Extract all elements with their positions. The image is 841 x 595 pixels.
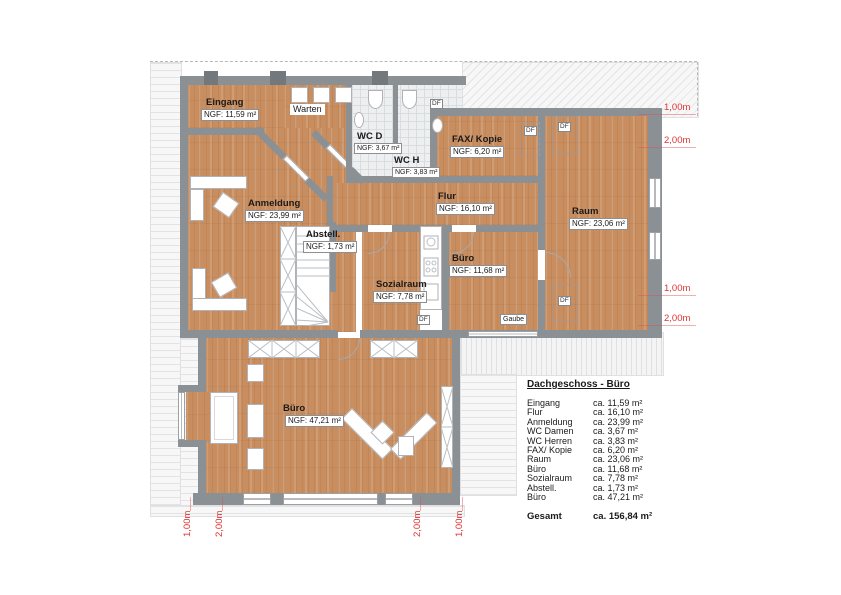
room-label-buero2: Büro bbox=[452, 254, 474, 264]
legend: Dachgeschoss - Büro Eingangca. 11,59 m² … bbox=[527, 379, 727, 522]
room-label-sozialraum: Sozialraum bbox=[376, 280, 427, 290]
room-label-wc-d: WC D bbox=[357, 132, 382, 142]
legend-room-name: Büro bbox=[527, 493, 593, 502]
room-label-warten: Warten bbox=[290, 104, 325, 115]
wall-flur-left bbox=[327, 176, 333, 228]
room-label-buero-gross: Büro bbox=[283, 404, 305, 414]
wall-right bbox=[648, 108, 662, 338]
dimension-line bbox=[638, 147, 696, 148]
dimension-bottom-4: 1,00m bbox=[455, 511, 465, 537]
window-buero-gross-1 bbox=[243, 493, 271, 505]
wall-left bbox=[180, 76, 188, 335]
dimension-right-2: 2,00m bbox=[664, 136, 690, 146]
room-area-abstell: NGF: 1,73 m² bbox=[303, 241, 357, 253]
legend-total-value: ca. 156,84 m² bbox=[593, 512, 652, 521]
room-area-raum: NGF: 23,06 m² bbox=[569, 218, 628, 230]
window-buero-gross-2 bbox=[283, 493, 378, 505]
dimension-tick bbox=[420, 497, 421, 511]
wall-bay-bottom bbox=[178, 440, 200, 447]
legend-total-label: Gesamt bbox=[527, 512, 593, 521]
roof-hatch-mid-right bbox=[460, 332, 664, 376]
window-gaube bbox=[468, 331, 538, 337]
room-label-anmeldung: Anmeldung bbox=[248, 199, 300, 209]
dimension-right-3: 1,00m bbox=[664, 284, 690, 294]
gaube-label: Gaube bbox=[500, 314, 527, 325]
cabinet-buero-gross-1 bbox=[248, 340, 320, 358]
wall-sozial-buero-divider bbox=[442, 225, 449, 332]
room-label-raum: Raum bbox=[572, 207, 598, 217]
roof-outline-dashed bbox=[150, 61, 697, 63]
skylight-label: DF bbox=[430, 99, 443, 109]
room-label-flur: Flur bbox=[438, 192, 456, 202]
room-label-wc-h: WC H bbox=[394, 156, 419, 166]
room-label-abstell: Abstell. bbox=[306, 230, 340, 240]
room-area-wc-d: NGF: 3,67 m² bbox=[354, 143, 402, 154]
legend-total-row: Gesamtca. 156,84 m² bbox=[527, 512, 727, 521]
toilet bbox=[402, 90, 417, 109]
room-area-wc-h: NGF: 3,83 m² bbox=[392, 167, 440, 178]
room-area-flur: NGF: 16,10 m² bbox=[436, 203, 495, 215]
wall-flur-top bbox=[346, 176, 545, 183]
wall-top-right bbox=[430, 108, 662, 116]
side-table bbox=[247, 448, 264, 470]
printer-cabinet bbox=[398, 436, 414, 456]
wall-bay-top bbox=[178, 385, 200, 392]
wall-main-horizontal bbox=[180, 330, 662, 338]
skylight-label: DF bbox=[524, 126, 537, 136]
roof-hatch-below-buero bbox=[460, 374, 517, 496]
warten-chair bbox=[291, 87, 308, 103]
cabinet-buero-gross-2 bbox=[370, 340, 418, 358]
wall-pillar bbox=[204, 71, 218, 85]
window-buero-gross-3 bbox=[385, 493, 413, 505]
wall-buero-gross-left bbox=[198, 338, 206, 495]
closet-anmeldung bbox=[280, 226, 296, 326]
roof-outline-dashed-right bbox=[697, 62, 699, 116]
wall-wc-divider bbox=[393, 85, 398, 143]
dimension-right-1: 1,00m bbox=[664, 103, 690, 113]
desk-return bbox=[190, 189, 204, 221]
dimension-tick bbox=[222, 497, 223, 511]
window-bay bbox=[178, 392, 185, 440]
warten-chair bbox=[313, 87, 330, 103]
room-area-buero2: NGF: 11,68 m² bbox=[449, 265, 507, 277]
sofa bbox=[210, 392, 238, 444]
window-raum-1 bbox=[649, 178, 661, 208]
dimension-bottom-3: 2,00m bbox=[413, 511, 423, 537]
dimension-line bbox=[638, 325, 696, 326]
wall-buero-gross-right bbox=[452, 338, 460, 505]
desk bbox=[190, 176, 247, 189]
toilet bbox=[368, 90, 383, 109]
dimension-line bbox=[638, 114, 696, 115]
sink bbox=[354, 112, 364, 128]
dimension-bottom-1: 1,00m bbox=[183, 511, 193, 537]
sink bbox=[432, 118, 443, 133]
room-area-anmeldung: NGF: 23,99 m² bbox=[245, 210, 304, 222]
room-area-sozialraum: NGF: 7,78 m² bbox=[373, 291, 427, 303]
dimension-tick bbox=[190, 497, 191, 511]
room-area-eingang: NGF: 11,59 m² bbox=[201, 109, 259, 121]
desk-return bbox=[192, 268, 206, 302]
room-label-eingang: Eingang bbox=[206, 98, 243, 108]
room-area-fax: NGF: 6,20 m² bbox=[450, 146, 504, 158]
warten-chair bbox=[335, 87, 352, 103]
cabinet-buero-gross-right bbox=[441, 386, 453, 468]
skylight-label: DF bbox=[417, 315, 430, 325]
skylight-label: DF bbox=[558, 122, 571, 132]
room-area-buero-gross: NGF: 47,21 m² bbox=[285, 415, 344, 427]
skylight-label: DF bbox=[558, 296, 571, 306]
dimension-right-4: 2,00m bbox=[664, 314, 690, 324]
wall-top-left bbox=[180, 76, 466, 85]
coffee-table bbox=[247, 404, 264, 438]
dimension-bottom-2: 2,00m bbox=[215, 511, 225, 537]
dimension-tick bbox=[462, 497, 463, 511]
room-label-fax: FAX/ Kopie bbox=[452, 135, 502, 145]
legend-room-area: ca. 47,21 m² bbox=[593, 493, 643, 502]
legend-title: Dachgeschoss - Büro bbox=[527, 379, 727, 390]
wall-pillar bbox=[270, 71, 286, 85]
dimension-line bbox=[638, 295, 696, 296]
wall-pillar bbox=[372, 71, 388, 85]
desk bbox=[192, 298, 247, 311]
wall-eingang-bottom bbox=[180, 128, 264, 135]
side-table bbox=[247, 364, 264, 382]
window-raum-2 bbox=[649, 232, 661, 260]
legend-row: Büroca. 47,21 m² bbox=[527, 493, 727, 502]
floor-plan-canvas: DF DF DF DF DF Gaube Eingang NGF: 11,59 … bbox=[0, 0, 841, 595]
